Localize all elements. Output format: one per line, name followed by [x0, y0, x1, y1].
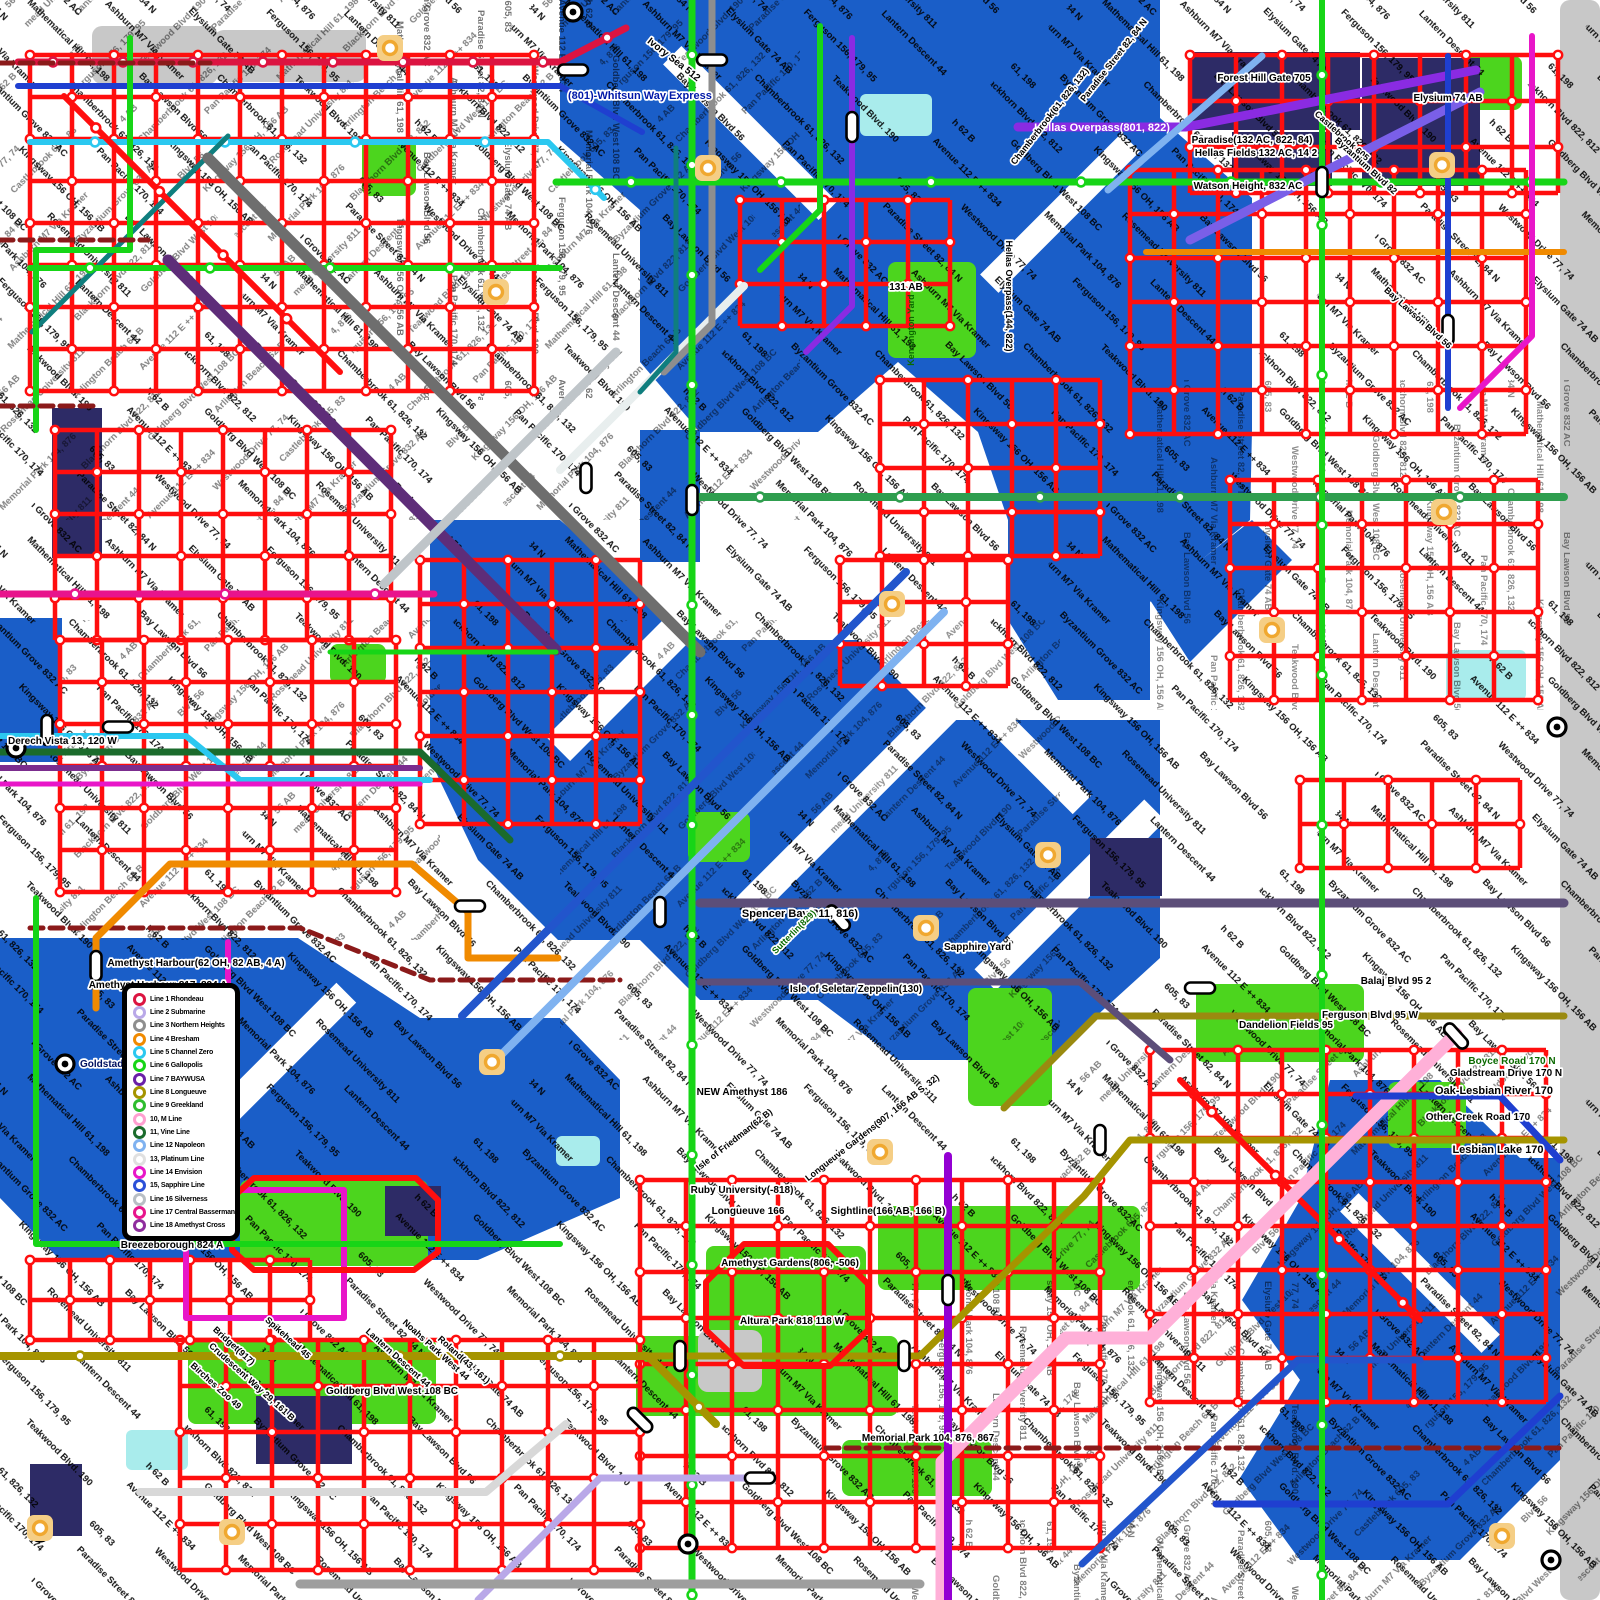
station-dot — [636, 1176, 644, 1184]
station-dot — [1390, 430, 1398, 438]
station-dot — [1170, 386, 1178, 394]
station-dot — [1478, 254, 1486, 262]
station-dot — [1170, 210, 1178, 218]
yard-icon-ring — [1266, 624, 1279, 637]
station-dot — [912, 1452, 920, 1460]
station-dot — [1472, 776, 1480, 784]
station-dot — [1278, 51, 1286, 59]
line-color-dot — [133, 1219, 146, 1232]
station-label: Elysium 74 AB — [1413, 93, 1482, 104]
station-dot — [1226, 476, 1234, 484]
station-dot — [278, 51, 286, 59]
station-dot — [1146, 1310, 1154, 1318]
station-dot — [351, 138, 360, 147]
legend-row: 11, Vine Line — [133, 1126, 231, 1138]
station-dot — [1190, 1354, 1198, 1362]
station-dot — [416, 732, 424, 740]
station-dot — [688, 1481, 697, 1490]
station-dot — [219, 510, 227, 518]
station-dot — [548, 600, 556, 608]
station-dot — [481, 138, 490, 147]
station-dot — [1302, 166, 1310, 174]
station-dot — [1335, 1235, 1344, 1244]
station-dot — [1534, 696, 1542, 704]
station-dot — [406, 1566, 414, 1574]
station-dot — [1214, 430, 1222, 438]
legend-line-label: Line 16 Silverness — [150, 1196, 208, 1203]
station-dot — [1542, 1178, 1550, 1186]
station-dot — [1390, 342, 1398, 350]
station-dot — [1508, 189, 1516, 197]
station-dot — [590, 1382, 598, 1390]
station-dot — [820, 1544, 828, 1552]
station-dot — [56, 804, 64, 812]
station-dot — [1490, 476, 1498, 484]
station-dot — [774, 1222, 782, 1230]
station-dot — [688, 711, 697, 720]
station-dot — [1207, 1107, 1216, 1116]
station-dot — [756, 493, 765, 502]
legend-row: 13, Platinum Line — [133, 1153, 231, 1165]
terminus-station-core — [62, 1061, 69, 1068]
station-dot — [1270, 696, 1278, 704]
station-dot — [68, 177, 76, 185]
station-dot — [548, 688, 556, 696]
station-dot — [406, 1474, 414, 1482]
station-dot — [1004, 640, 1012, 648]
interchange-station — [1095, 1125, 1106, 1155]
station-dot — [920, 640, 928, 648]
station-dot — [688, 1151, 697, 1160]
yard-icon-ring — [874, 1146, 887, 1159]
station-dot — [93, 552, 101, 560]
station-dot — [98, 678, 106, 686]
station-dot — [866, 1222, 874, 1230]
legend-row: Line 8 Longueuve — [133, 1086, 231, 1098]
station-dot — [446, 219, 454, 227]
station-dot — [194, 387, 202, 395]
legend-row: 10, M Line — [133, 1113, 231, 1125]
station-label: Breezeborough 824 A — [121, 1240, 223, 1251]
line-color-dot — [133, 1099, 146, 1112]
station-dot — [1170, 298, 1178, 306]
station-dot — [1004, 556, 1012, 564]
yard-icon-ring — [34, 1522, 47, 1535]
station-dot — [498, 1382, 506, 1390]
line-color-dot — [133, 1193, 146, 1206]
station-dot — [1008, 420, 1016, 428]
station-dot — [820, 1268, 828, 1276]
station-dot — [958, 1406, 966, 1414]
station-dot — [1146, 1222, 1154, 1230]
line-color-dot — [133, 1166, 146, 1179]
station-dot — [1522, 210, 1530, 218]
station-dot — [224, 804, 232, 812]
station-dot — [1278, 1090, 1286, 1098]
station-dot — [962, 598, 970, 606]
station-label: Hellas Fields 132 AC, 14 2 — [1195, 148, 1318, 159]
station-dot — [912, 1268, 920, 1276]
station-dot — [1318, 1421, 1327, 1430]
station-dot — [308, 720, 316, 728]
legend-row: Line 2 Submarine — [133, 1006, 231, 1018]
station-dot — [1318, 521, 1327, 530]
station-dot — [964, 376, 972, 384]
yard-icon-ring — [1042, 849, 1055, 862]
station-dot — [135, 426, 143, 434]
station-dot — [1050, 1498, 1058, 1506]
line-color-dot — [133, 1126, 146, 1139]
station-dot — [1077, 178, 1086, 187]
station-label: Sapphire Yard — [944, 942, 1011, 953]
station-dot — [56, 636, 64, 644]
station-label: Gladstream Drive 170 N — [1450, 1068, 1562, 1079]
station-dot — [26, 1336, 34, 1344]
station-dot — [1234, 1310, 1242, 1318]
station-dot — [460, 776, 468, 784]
station-dot — [236, 345, 244, 353]
station-dot — [636, 1336, 644, 1344]
station-dot — [362, 51, 370, 59]
station-dot — [603, 33, 612, 42]
station-dot — [460, 600, 468, 608]
terminus-station-core — [685, 1541, 692, 1548]
station-dot — [1478, 166, 1486, 174]
station-dot — [1270, 520, 1278, 528]
station-label: Longueuve 166 — [712, 1206, 785, 1217]
station-dot — [66, 1296, 74, 1304]
station-dot — [226, 1296, 234, 1304]
station-dot — [350, 846, 358, 854]
station-dot — [592, 820, 600, 828]
station-dot — [371, 590, 380, 599]
station-dot — [26, 303, 34, 311]
station-dot — [308, 636, 316, 644]
station-dot — [1522, 298, 1530, 306]
legend-row: Line 7 BAYWUSA — [133, 1073, 231, 1085]
station-dot — [177, 468, 185, 476]
line-color-dot — [133, 1033, 146, 1046]
station-dot — [176, 1428, 184, 1436]
station-dot — [1522, 386, 1530, 394]
station-dot — [1126, 430, 1134, 438]
station-dot — [774, 1498, 782, 1506]
station-dot — [688, 821, 697, 830]
station-dot — [592, 644, 600, 652]
station-dot — [152, 345, 160, 353]
transit-line-greekland-horizontal — [690, 493, 1564, 502]
station-dot — [530, 387, 538, 395]
yard-icon-ring — [226, 1526, 239, 1539]
yard-icon-ring — [490, 286, 503, 299]
terminus-station-core — [1554, 724, 1561, 731]
line-color-dot — [133, 993, 146, 1006]
station-dot — [1456, 493, 1465, 502]
station-dot — [1454, 1266, 1462, 1274]
station-dot — [1302, 430, 1310, 438]
station-dot — [1358, 520, 1366, 528]
station-dot — [1318, 1271, 1327, 1280]
station-dot — [360, 1520, 368, 1528]
station-dot — [1190, 1178, 1198, 1186]
station-label: Dandelion Fields 95 — [1239, 1020, 1333, 1031]
station-dot — [1498, 1222, 1506, 1230]
station-dot — [1096, 508, 1104, 516]
station-dot — [530, 303, 538, 311]
station-dot — [1052, 464, 1060, 472]
station-dot — [135, 510, 143, 518]
station-label: Sightline(166 AB, 166 B) — [831, 1206, 946, 1217]
station-dot — [1534, 520, 1542, 528]
station-dot — [866, 1406, 874, 1414]
station-label: Other Creek Road 170 — [1426, 1112, 1531, 1123]
station-label: Hellas Overpass(144, 822) — [1004, 240, 1014, 351]
station-dot — [548, 776, 556, 784]
station-dot — [387, 510, 395, 518]
legend-line-label: 13, Platinum Line — [150, 1156, 204, 1163]
station-dot — [1126, 342, 1134, 350]
station-dot — [1346, 210, 1354, 218]
station-dot — [904, 196, 912, 204]
station-dot — [140, 636, 148, 644]
station-dot — [1498, 1398, 1506, 1406]
station-dot — [140, 804, 148, 812]
station-dot — [820, 1176, 828, 1184]
station-dot — [56, 888, 64, 896]
terminus-station-core — [570, 9, 577, 16]
interchange-station — [745, 1473, 775, 1484]
station-dot — [404, 93, 412, 101]
yard-icon-ring — [1496, 1530, 1509, 1543]
legend-line-label: Line 4 Bresham — [150, 1036, 199, 1043]
station-dot — [946, 238, 954, 246]
line-color-dot — [133, 1019, 146, 1032]
station-dot — [219, 426, 227, 434]
station-dot — [1226, 652, 1234, 660]
station-dot — [469, 58, 478, 67]
legend-row: Line 4 Bresham — [133, 1033, 231, 1045]
station-dot — [876, 464, 884, 472]
station-dot — [1234, 1046, 1242, 1054]
legend-row: Line 5 Channel Zero — [133, 1046, 231, 1058]
station-dot — [688, 1591, 697, 1600]
station-dot — [206, 264, 215, 273]
legend-line-label: Line 9 Greekland — [150, 1102, 203, 1109]
station-dot — [1416, 189, 1424, 197]
station-dot — [1402, 652, 1410, 660]
station-label: Altura Park 818 118 W — [740, 1316, 845, 1327]
station-dot — [1271, 1171, 1280, 1180]
station-dot — [1508, 97, 1516, 105]
station-dot — [182, 846, 190, 854]
legend-line-label: Line 14 Envision — [150, 1169, 202, 1176]
transit-map-canvas: Paradise Street 82, 84 NChamberbrook 61,… — [0, 0, 1600, 1600]
station-dot — [362, 219, 370, 227]
station-label: Goldberg Blvd West 108 BC — [326, 1386, 458, 1397]
station-dot — [1490, 652, 1498, 660]
legend-line-label: Line 2 Submarine — [150, 1009, 205, 1016]
station-dot — [1278, 1266, 1286, 1274]
station-dot — [636, 1268, 644, 1276]
station-dot — [392, 888, 400, 896]
station-dot — [392, 720, 400, 728]
station-dot — [268, 1520, 276, 1528]
interchange-station — [847, 112, 858, 142]
station-label: Isle of Seletar Zeppelin(130) — [790, 984, 922, 995]
station-dot — [460, 688, 468, 696]
station-dot — [1296, 776, 1304, 784]
station-dot — [1278, 1354, 1286, 1362]
station-dot — [958, 1498, 966, 1506]
station-dot — [1340, 820, 1348, 828]
legend-row: Line 6 Gallopolis — [133, 1060, 231, 1072]
station-label: Kensington Yard — [906, 294, 916, 365]
station-dot — [1446, 696, 1454, 704]
station-dot — [236, 93, 244, 101]
station-dot — [530, 219, 538, 227]
station-dot — [56, 720, 64, 728]
station-dot — [1050, 1406, 1058, 1414]
interchange-station — [899, 1341, 910, 1371]
station-dot — [1446, 608, 1454, 616]
station-dot — [1462, 51, 1470, 59]
legend-box: Line 1 Rhondeau Line 2 Submarine Line 3 … — [122, 983, 240, 1241]
terminus-station-core — [1548, 1557, 1555, 1564]
station-dot — [1366, 1178, 1374, 1186]
station-dot — [416, 820, 424, 828]
station-dot — [71, 590, 80, 599]
interchange-station — [1185, 983, 1215, 994]
station-dot — [76, 1352, 85, 1361]
interchange-station — [455, 901, 485, 912]
station-dot — [303, 426, 311, 434]
station-dot — [1498, 1046, 1506, 1054]
station-dot — [530, 51, 538, 59]
station-label: Hellas Overpass(801, 822) — [1034, 122, 1170, 134]
station-dot — [778, 322, 786, 330]
station-label: Derech Vista 13, 120 W — [8, 736, 117, 747]
legend-line-label: Line 17 Central Bassermann — [150, 1209, 239, 1216]
station-dot — [26, 1256, 34, 1264]
interchange-station — [558, 65, 588, 76]
station-dot — [26, 387, 34, 395]
station-dot — [1478, 430, 1486, 438]
transit-map-svg: Paradise Street 82, 84 NChamberbrook 61,… — [0, 0, 1600, 1600]
station-dot — [446, 51, 454, 59]
station-dot — [1390, 254, 1398, 262]
station-dot — [282, 314, 291, 323]
legend-row: Line 12 Napoleon — [133, 1140, 231, 1152]
station-dot — [68, 345, 76, 353]
station-dot — [1096, 420, 1104, 428]
station-dot — [962, 682, 970, 690]
station-dot — [1542, 1266, 1550, 1274]
station-dot — [259, 58, 268, 67]
station-dot — [1186, 51, 1194, 59]
station-dot — [1410, 1398, 1418, 1406]
station-dot — [106, 1256, 114, 1264]
station-label: Paradise(132 AC, 822, 84) — [1192, 135, 1313, 146]
station-dot — [1190, 1266, 1198, 1274]
legend-line-label: Line 5 Channel Zero — [150, 1049, 213, 1056]
station-dot — [1232, 97, 1240, 105]
legend-row: Line 1 Rhondeau — [133, 993, 231, 1005]
interchange-station — [697, 55, 727, 66]
station-dot — [51, 426, 59, 434]
station-dot — [360, 1428, 368, 1436]
station-dot — [1004, 1176, 1012, 1184]
legend-row: Line 9 Greekland — [133, 1100, 231, 1112]
station-dot — [1490, 564, 1498, 572]
station-dot — [1176, 493, 1185, 502]
station-dot — [1472, 864, 1480, 872]
station-dot — [1384, 864, 1392, 872]
station-dot — [261, 552, 269, 560]
station-dot — [1258, 298, 1266, 306]
station-dot — [345, 552, 353, 560]
station-dot — [392, 636, 400, 644]
station-dot — [912, 1176, 920, 1184]
station-dot — [927, 178, 936, 187]
station-dot — [777, 178, 786, 187]
interchange-station — [687, 485, 698, 515]
station-dot — [920, 508, 928, 516]
station-dot — [26, 219, 34, 227]
station-dot — [1358, 608, 1366, 616]
station-dot — [912, 1360, 920, 1368]
line-color-dot — [133, 1139, 146, 1152]
station-label: Oak-Lesbian River 170 — [1435, 1085, 1553, 1097]
line-color-dot — [133, 1046, 146, 1059]
yard-icon-ring — [486, 1056, 499, 1069]
station-dot — [224, 636, 232, 644]
station-label: 131 AB — [889, 282, 923, 293]
station-dot — [1302, 254, 1310, 262]
station-dot — [146, 1296, 154, 1304]
station-dot — [820, 280, 828, 288]
station-dot — [774, 1406, 782, 1414]
station-dot — [688, 381, 697, 390]
station-dot — [504, 820, 512, 828]
station-dot — [1410, 1046, 1418, 1054]
station-dot — [446, 303, 454, 311]
station-dot — [1384, 776, 1392, 784]
station-dot — [51, 510, 59, 518]
station-dot — [110, 303, 118, 311]
station-dot — [404, 177, 412, 185]
station-dot — [688, 601, 697, 610]
station-dot — [1454, 1178, 1462, 1186]
station-dot — [1516, 820, 1524, 828]
line-color-dot — [133, 1179, 146, 1192]
station-dot — [93, 468, 101, 476]
line-color-dot — [133, 1153, 146, 1166]
station-label: (801)-Whitsun Way Express — [568, 90, 712, 102]
legend-line-label: Line 6 Gallopolis — [150, 1062, 203, 1069]
legend-line-label: Line 8 Longueuve — [150, 1089, 206, 1096]
station-dot — [345, 468, 353, 476]
station-dot — [836, 556, 844, 564]
interchange-station — [675, 1341, 686, 1371]
station-label: Amethyst Gardens(806, -506) — [721, 1258, 859, 1269]
station-dot — [1318, 71, 1327, 80]
station-dot — [1234, 1222, 1242, 1230]
station-dot — [1498, 1310, 1506, 1318]
station-dot — [110, 387, 118, 395]
station-dot — [636, 688, 644, 696]
station-dot — [266, 1256, 274, 1264]
station-dot — [194, 303, 202, 311]
